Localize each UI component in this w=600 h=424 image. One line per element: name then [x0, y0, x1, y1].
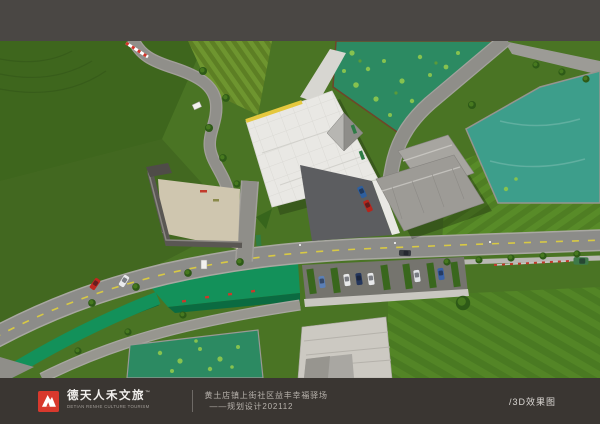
footer-divider — [192, 390, 193, 412]
farmhouse-roof — [298, 317, 392, 378]
presentation-board: 德天人禾文旅™ DETIAN RENHE CULTURE TOURISM 黄土店… — [0, 0, 600, 424]
trademark-symbol: ™ — [145, 390, 150, 396]
brand-block: 德天人禾文旅™ DETIAN RENHE CULTURE TOURISM 黄土店… — [38, 390, 328, 412]
project-title: 黄土店镇上街社区益丰幸福驿场 — [205, 390, 328, 401]
detian-logo-icon — [38, 391, 59, 412]
brand-name-en: DETIAN RENHE CULTURE TOURISM — [67, 405, 149, 409]
footer-bar: 德天人禾文旅™ DETIAN RENHE CULTURE TOURISM 黄土店… — [0, 378, 600, 424]
plaza-access-road — [244, 181, 250, 261]
aerial-render-image — [0, 41, 600, 378]
brand-name: 德天人禾文旅™ DETIAN RENHE CULTURE TOURISM — [67, 391, 182, 411]
brand-name-cn: 德天人禾文旅 — [67, 390, 145, 402]
project-caption: 黄土店镇上街社区益丰幸福驿场 ——规划设计202112 — [205, 390, 328, 412]
project-subtitle: ——规划设计202112 — [210, 401, 328, 412]
top-margin-bar — [0, 0, 600, 41]
view-type-label: /3D效果图 — [509, 395, 556, 408]
